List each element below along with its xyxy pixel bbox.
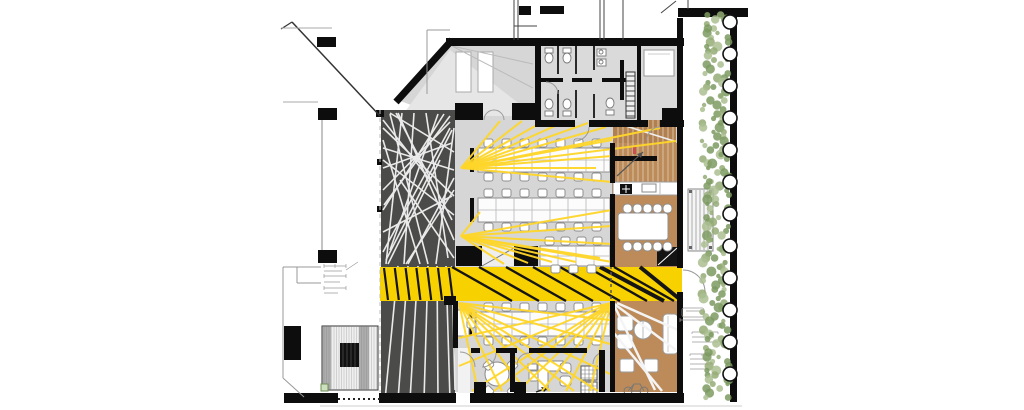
ottoman bbox=[620, 359, 634, 372]
entry-stair-slot bbox=[478, 52, 493, 92]
stair-treads bbox=[613, 120, 676, 182]
entry-stair-slot bbox=[456, 52, 471, 92]
east-facade-wall bbox=[677, 18, 683, 268]
site-wall-block bbox=[317, 37, 336, 47]
section-mark bbox=[633, 147, 636, 154]
north-wall bbox=[446, 38, 684, 46]
south-wall-left bbox=[284, 393, 338, 403]
bath-storage-wall bbox=[637, 46, 641, 120]
dimension-annotations bbox=[324, 262, 358, 293]
top-right-wall bbox=[678, 8, 748, 17]
site-wall-block bbox=[318, 108, 337, 120]
ladder-stair bbox=[626, 72, 635, 118]
column-block bbox=[456, 246, 482, 266]
storage-block bbox=[662, 108, 677, 120]
entry-column bbox=[455, 103, 483, 120]
floor-plan-drawing bbox=[0, 0, 1024, 410]
sofa bbox=[663, 314, 678, 354]
meeting-table-group bbox=[618, 204, 672, 251]
site-wall-block bbox=[318, 250, 337, 263]
sink-icon bbox=[642, 184, 656, 192]
south-wall bbox=[379, 393, 456, 403]
planter-square bbox=[321, 384, 328, 391]
site-wall-block bbox=[284, 326, 301, 360]
floor-plan-canvas bbox=[0, 0, 1024, 410]
south-wall bbox=[470, 393, 684, 403]
entry-column bbox=[512, 103, 538, 120]
stair-lift-block bbox=[321, 326, 378, 391]
